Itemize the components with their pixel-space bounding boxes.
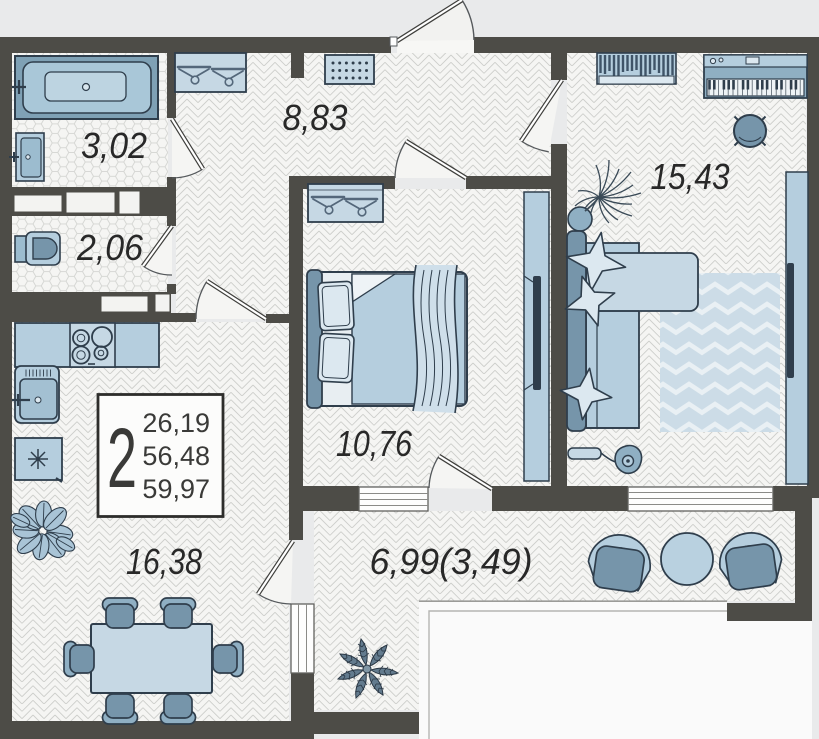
svg-text:10,76: 10,76 bbox=[336, 423, 413, 464]
svg-text:16,38: 16,38 bbox=[126, 541, 202, 582]
svg-text:56,48: 56,48 bbox=[142, 441, 210, 471]
svg-text:3,02: 3,02 bbox=[81, 125, 147, 166]
svg-text:6,99(3,49): 6,99(3,49) bbox=[370, 541, 533, 582]
svg-text:26,19: 26,19 bbox=[142, 408, 210, 438]
svg-text:2: 2 bbox=[107, 411, 137, 505]
svg-text:15,43: 15,43 bbox=[651, 156, 730, 197]
svg-text:59,97: 59,97 bbox=[142, 474, 210, 504]
svg-text:8,83: 8,83 bbox=[283, 97, 348, 138]
svg-text:2,06: 2,06 bbox=[76, 227, 144, 268]
